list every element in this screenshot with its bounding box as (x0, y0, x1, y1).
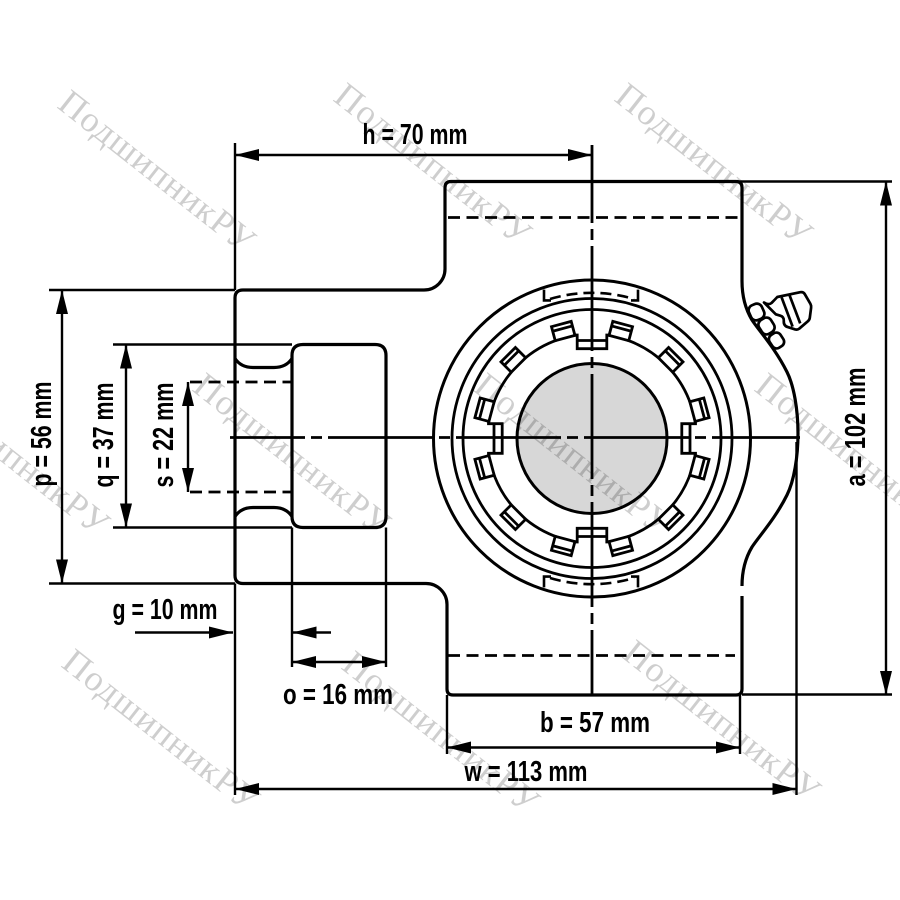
svg-text:o = 16 mm: o = 16 mm (283, 679, 393, 711)
svg-text:h = 70 mm: h = 70 mm (363, 119, 468, 151)
svg-text:q = 37 mm: q = 37 mm (88, 383, 120, 488)
svg-text:p = 56 mm: p = 56 mm (26, 382, 58, 487)
svg-text:g = 10 mm: g = 10 mm (113, 594, 218, 626)
svg-text:w = 113 mm: w = 113 mm (464, 756, 588, 788)
svg-text:a = 102 mm: a = 102 mm (840, 368, 872, 487)
svg-text:s = 22 mm: s = 22 mm (148, 383, 180, 488)
svg-text:b = 57 mm: b = 57 mm (540, 707, 650, 739)
